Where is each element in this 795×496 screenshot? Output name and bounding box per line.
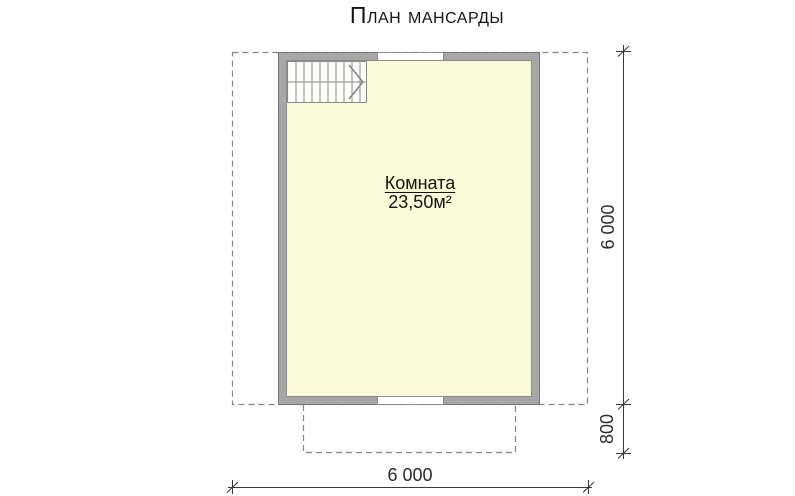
balcony-door-opening [377,396,444,405]
room-floor [286,60,532,397]
dimension-balcony-depth-label: 800 [597,399,617,459]
stairs-symbol [287,61,367,103]
stairs-steps [288,62,366,102]
window-top [377,52,444,61]
dimension-width-label: 6 000 [335,465,485,486]
room-area: 23,50м² [300,193,540,212]
building-walls [278,52,540,405]
dimension-height-line [616,45,631,459]
room-label: Комната [385,173,455,193]
dimension-height-label: 6 000 [598,192,618,262]
balcony-outline [304,405,516,453]
room-label-group: Комната 23,50м² [300,173,540,212]
